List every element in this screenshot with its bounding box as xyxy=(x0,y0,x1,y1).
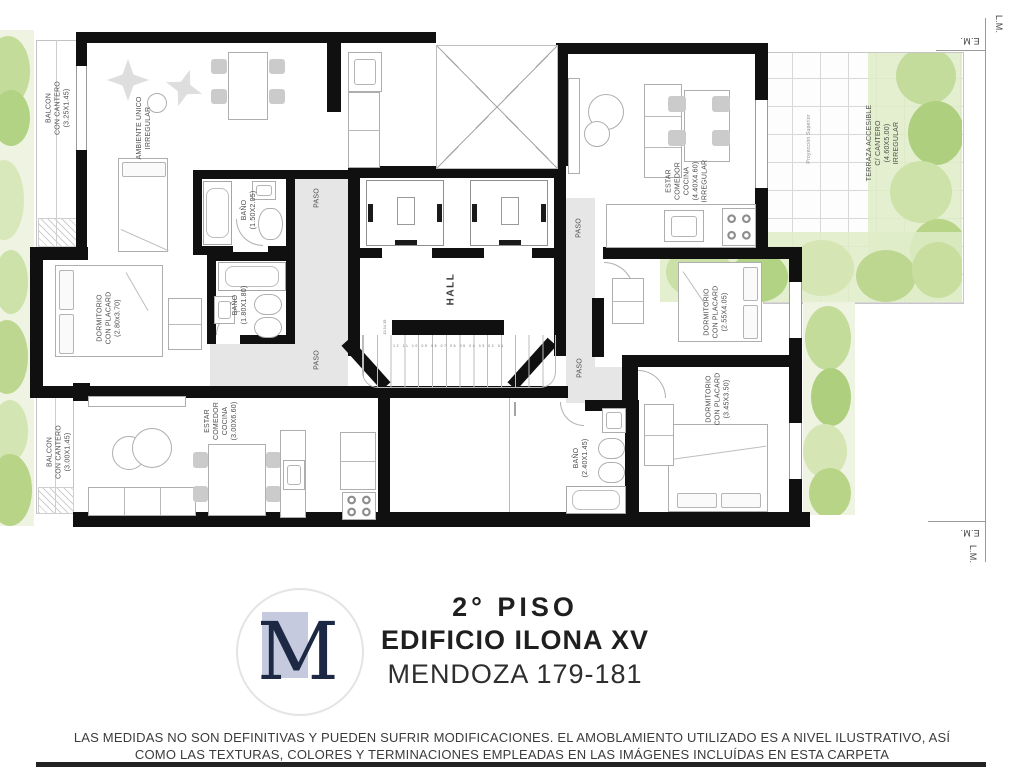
wall xyxy=(625,400,639,515)
floorplan-sheet: 12 11 10 09 08 07 06 05 04 03 02 01 13 1… xyxy=(0,0,1024,768)
chair xyxy=(211,89,227,104)
air-light-void xyxy=(436,45,558,169)
disclaimer-line-1: LAS MEDIDAS NO SON DEFINITIVAS Y PUEDEN … xyxy=(0,729,1024,746)
kitchen-sink xyxy=(348,52,382,92)
boundary-label-lm-top: L.M. xyxy=(992,15,1004,33)
paso-label: PASO xyxy=(314,350,323,370)
elevator-mech xyxy=(397,197,415,225)
kitchen-sink xyxy=(283,460,305,490)
boundary-label-lm-bottom: L.M. xyxy=(966,545,978,563)
pillow xyxy=(677,493,717,508)
wall xyxy=(286,170,295,254)
bed xyxy=(118,158,168,252)
leaf-blob xyxy=(811,368,851,426)
wall xyxy=(193,170,295,179)
sofa xyxy=(88,487,196,516)
room-label-dormitorio-e: DORMITORIO CON PLACARD (2.55X4.05) xyxy=(704,286,731,339)
bottom-rule xyxy=(36,762,986,767)
stair-run-numbers: 12 11 10 09 08 07 06 05 04 03 02 01 xyxy=(393,345,505,349)
wall xyxy=(348,166,360,356)
balcony-planter-hatch xyxy=(38,487,74,514)
paso-patch-west xyxy=(210,344,348,386)
room-label-terraza: TERRAZA ACCESIBLE C/ CANTERO (4.60X5.00)… xyxy=(866,105,902,182)
disclaimer-line-2: COMO LAS TEXTURAS, COLORES Y TERMINACION… xyxy=(0,746,1024,763)
wall xyxy=(638,355,791,367)
window xyxy=(789,282,802,338)
leaf-blob xyxy=(809,468,851,515)
annotation-marks xyxy=(514,402,516,416)
room-label-dormitorio-w: DORMITORIO CON PLACARD (2.80x3.70) xyxy=(97,292,124,345)
boundary-tick xyxy=(936,50,986,51)
leaf-blob xyxy=(0,454,32,526)
leaf-blob xyxy=(912,242,962,298)
logo-letter: M xyxy=(240,596,356,708)
wall xyxy=(193,170,202,254)
tv-unit xyxy=(568,78,580,174)
room-label-balcon-sw: BALCON CON CANTERO (3.00X1.45) xyxy=(47,425,74,479)
pillow xyxy=(721,493,761,508)
paso-label: PASO xyxy=(577,358,586,378)
bed-fold-line xyxy=(121,229,169,251)
leaf-blob xyxy=(0,250,28,314)
room-label-hall: HALL xyxy=(446,273,459,306)
stair-landing-numbers: 13 14 15 xyxy=(384,320,389,335)
room-label-bano-se: BAÑO (2.40X1.45) xyxy=(573,439,591,478)
wall xyxy=(207,252,295,261)
elevator-rail xyxy=(472,204,477,222)
planting-right-strip xyxy=(803,302,855,515)
wall xyxy=(432,248,484,258)
door-arc xyxy=(638,370,666,398)
terrace-projection-note: Proyección Superior xyxy=(807,114,814,163)
wall xyxy=(556,43,768,54)
pillow xyxy=(59,270,74,310)
leaf-blob xyxy=(0,160,24,240)
wall xyxy=(76,148,87,255)
chair xyxy=(193,452,208,468)
toilet xyxy=(598,438,625,459)
leaf-blob xyxy=(0,90,30,146)
bed xyxy=(668,424,768,512)
chair xyxy=(211,59,227,74)
wall xyxy=(360,248,382,258)
toilet xyxy=(254,294,282,315)
elevator-rail xyxy=(541,204,546,222)
pillow xyxy=(59,314,74,354)
door-arc xyxy=(560,402,584,426)
window xyxy=(789,423,802,479)
bathtub xyxy=(218,262,286,291)
partition-line xyxy=(509,398,510,512)
room-label-bano-w: BAÑO (1.80X1.80) xyxy=(232,286,250,325)
leaf-blob xyxy=(0,400,28,462)
dining-table xyxy=(228,52,268,120)
wall xyxy=(755,43,768,101)
wall xyxy=(378,395,390,517)
room-label-estar-sw: ESTAR COMEDOR COCINA (3.00X6.60) xyxy=(204,402,240,441)
disclaimer-text: LAS MEDIDAS NO SON DEFINITIVAS Y PUEDEN … xyxy=(0,729,1024,763)
wall xyxy=(76,32,87,68)
wall xyxy=(622,355,638,403)
pouf xyxy=(132,428,172,468)
leaf-blob xyxy=(856,250,916,302)
room-label-ambiente-unico: AMBIENTE UNICO IRREGULAR xyxy=(136,96,154,159)
leaf-blob xyxy=(896,53,956,105)
tv-unit xyxy=(88,396,186,407)
elevator-door xyxy=(395,240,417,245)
stove xyxy=(722,208,756,246)
wall xyxy=(755,188,768,252)
chair xyxy=(668,130,686,146)
bed-fold-line xyxy=(126,272,149,311)
bed-fold-line xyxy=(671,446,766,460)
lounge-chair xyxy=(160,64,208,112)
chair xyxy=(266,452,281,468)
room-label-estar-ne: ESTAR COMEDOR COCINA (4.40X4.60) IRREGUL… xyxy=(666,160,711,203)
building-title: EDIFICIO ILONA XV xyxy=(342,625,688,656)
chair xyxy=(668,96,686,112)
wall xyxy=(603,247,791,259)
room-label-dormitorio-se: DORMITORIO CON PLACARD (3.45X3.50) xyxy=(706,373,733,426)
staircase-steps xyxy=(362,335,556,388)
wall xyxy=(76,32,436,43)
chair xyxy=(269,59,285,74)
wall xyxy=(554,166,566,356)
chair xyxy=(269,89,285,104)
pillow xyxy=(122,162,166,177)
room-label-bano-nw: BAÑO (1.50X2.05) xyxy=(241,191,259,230)
wall xyxy=(592,298,604,357)
lounge-chair xyxy=(107,59,149,101)
elevator-rail xyxy=(437,204,442,222)
window xyxy=(755,100,768,188)
boundary-label-em-bottom: E.M. xyxy=(960,526,979,538)
elevator-mech xyxy=(501,197,519,225)
leaf-blob xyxy=(0,320,28,394)
chair xyxy=(266,486,281,502)
stair-landing xyxy=(392,320,504,335)
chair xyxy=(712,96,730,112)
elevator-rail xyxy=(368,204,373,222)
wall xyxy=(30,247,43,387)
kitchen-counter xyxy=(348,92,380,168)
pillow xyxy=(743,267,758,301)
wall xyxy=(532,248,554,258)
bathtub xyxy=(566,486,626,514)
wardrobe xyxy=(168,298,202,350)
dining-table xyxy=(208,444,266,516)
chair xyxy=(193,486,208,502)
kitchen-sink xyxy=(664,210,704,242)
bed-fold-line xyxy=(683,271,706,305)
chair xyxy=(712,130,730,146)
elevator-door xyxy=(499,240,521,245)
wall xyxy=(327,32,341,112)
elevator-car xyxy=(470,180,548,246)
window xyxy=(76,66,87,150)
address-title: MENDOZA 179-181 xyxy=(342,659,688,690)
wall xyxy=(286,252,295,344)
bidet xyxy=(598,462,625,483)
leaf-blob xyxy=(805,306,851,370)
balcony-planter-hatch xyxy=(38,218,77,247)
pillow xyxy=(743,305,758,339)
elevator-car xyxy=(366,180,444,246)
planting-left-strip xyxy=(0,30,34,526)
toilet xyxy=(258,208,283,240)
property-line xyxy=(985,18,986,562)
paso-label: PASO xyxy=(314,188,323,208)
leaf-blob xyxy=(908,101,962,165)
paso-patch-east xyxy=(566,367,622,403)
kitchen-cabinet xyxy=(340,432,376,490)
bath-sink xyxy=(602,408,626,433)
room-label-balcon-nw: BALCON CON CANTERO (3.25X1.45) xyxy=(46,81,73,135)
bidet xyxy=(254,317,282,338)
bathtub xyxy=(203,181,232,245)
paso-label: PASO xyxy=(576,218,585,238)
balcony-rail xyxy=(56,40,57,248)
wardrobe xyxy=(612,278,644,324)
stove xyxy=(342,492,376,520)
wall xyxy=(295,170,360,179)
boundary-label-em-top: E.M. xyxy=(960,34,979,46)
boundary-tick xyxy=(928,521,986,522)
floor-title: 2° PISO xyxy=(362,592,668,623)
wardrobe xyxy=(644,404,674,466)
pouf xyxy=(584,121,610,147)
